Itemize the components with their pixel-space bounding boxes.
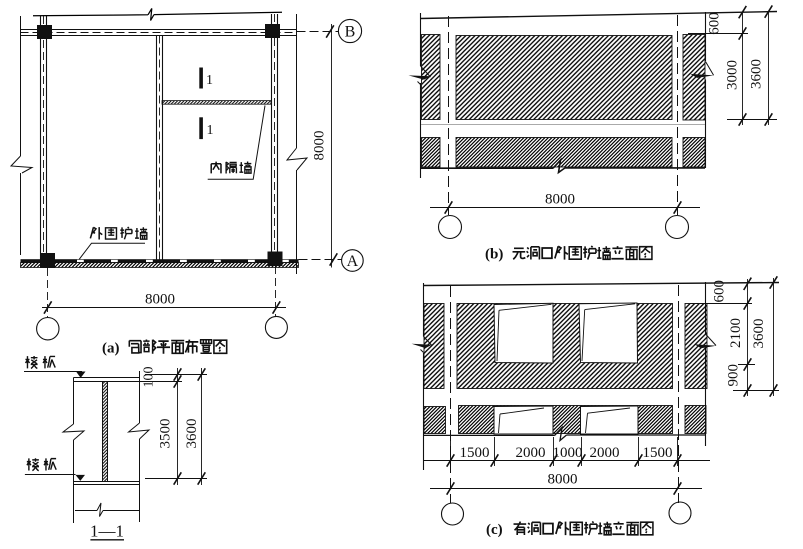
svg-text:2000: 2000 <box>516 445 546 461</box>
svg-text:100: 100 <box>142 367 157 388</box>
svg-text:8000: 8000 <box>312 131 328 161</box>
svg-text:3600: 3600 <box>184 419 200 449</box>
svg-text:8000: 8000 <box>548 472 578 488</box>
svg-text:1500: 1500 <box>643 445 673 461</box>
svg-text:A: A <box>347 253 359 270</box>
svg-text:2000: 2000 <box>590 445 620 461</box>
svg-text:1000: 1000 <box>553 445 583 461</box>
svg-text:1: 1 <box>207 123 214 138</box>
svg-text:(c): (c) <box>486 522 503 538</box>
svg-text:B: B <box>345 24 356 41</box>
svg-text:8000: 8000 <box>545 192 575 208</box>
svg-text:1: 1 <box>206 73 213 88</box>
svg-text:(b): (b) <box>485 247 503 263</box>
svg-text:600: 600 <box>707 12 723 35</box>
svg-text:3500: 3500 <box>158 419 174 449</box>
svg-text:8000: 8000 <box>145 292 175 308</box>
svg-text:3600: 3600 <box>751 319 767 349</box>
svg-text:2100: 2100 <box>728 318 744 348</box>
svg-text:900: 900 <box>725 364 741 387</box>
svg-text:1500: 1500 <box>460 445 490 461</box>
svg-text:(a): (a) <box>102 341 120 357</box>
svg-text:600: 600 <box>712 280 728 303</box>
svg-text:3000: 3000 <box>725 60 741 90</box>
svg-text:3600: 3600 <box>749 59 765 89</box>
svg-text:1—1: 1—1 <box>90 522 124 541</box>
